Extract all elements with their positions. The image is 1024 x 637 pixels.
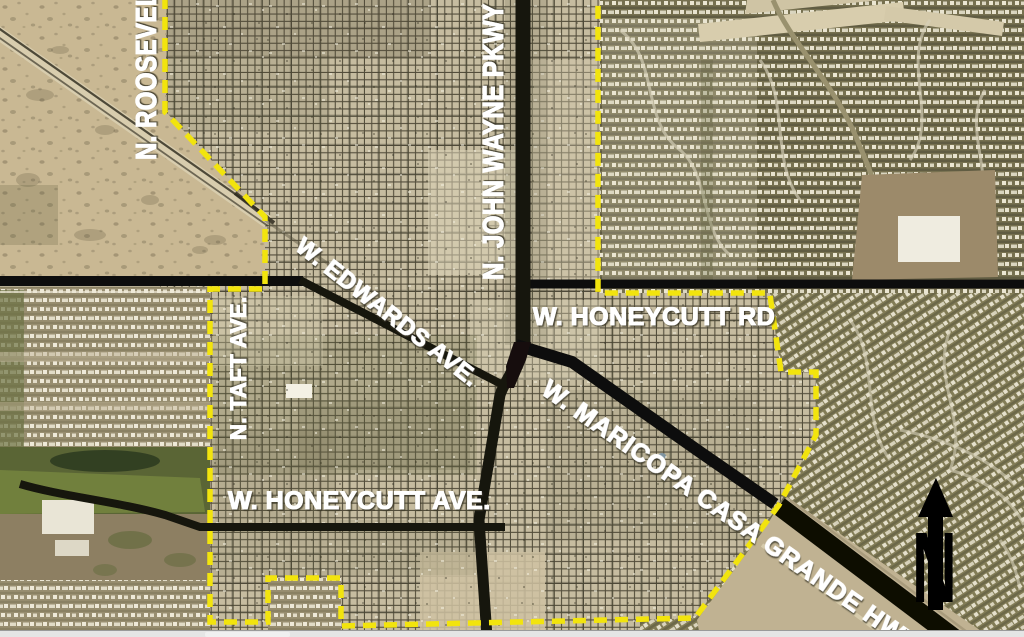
svg-text:N: N — [912, 512, 957, 624]
svg-text:W. HONEYCUTT RD: W. HONEYCUTT RD — [533, 303, 775, 331]
svg-text:N. TAFT AVE.: N. TAFT AVE. — [226, 296, 251, 440]
svg-text:N. ROOSEVELT: N. ROOSEVELT — [130, 0, 163, 160]
svg-text:W. HONEYCUTT AVE.: W. HONEYCUTT AVE. — [228, 487, 491, 515]
svg-text:N. JOHN WAYNE PKWY: N. JOHN WAYNE PKWY — [477, 4, 510, 280]
